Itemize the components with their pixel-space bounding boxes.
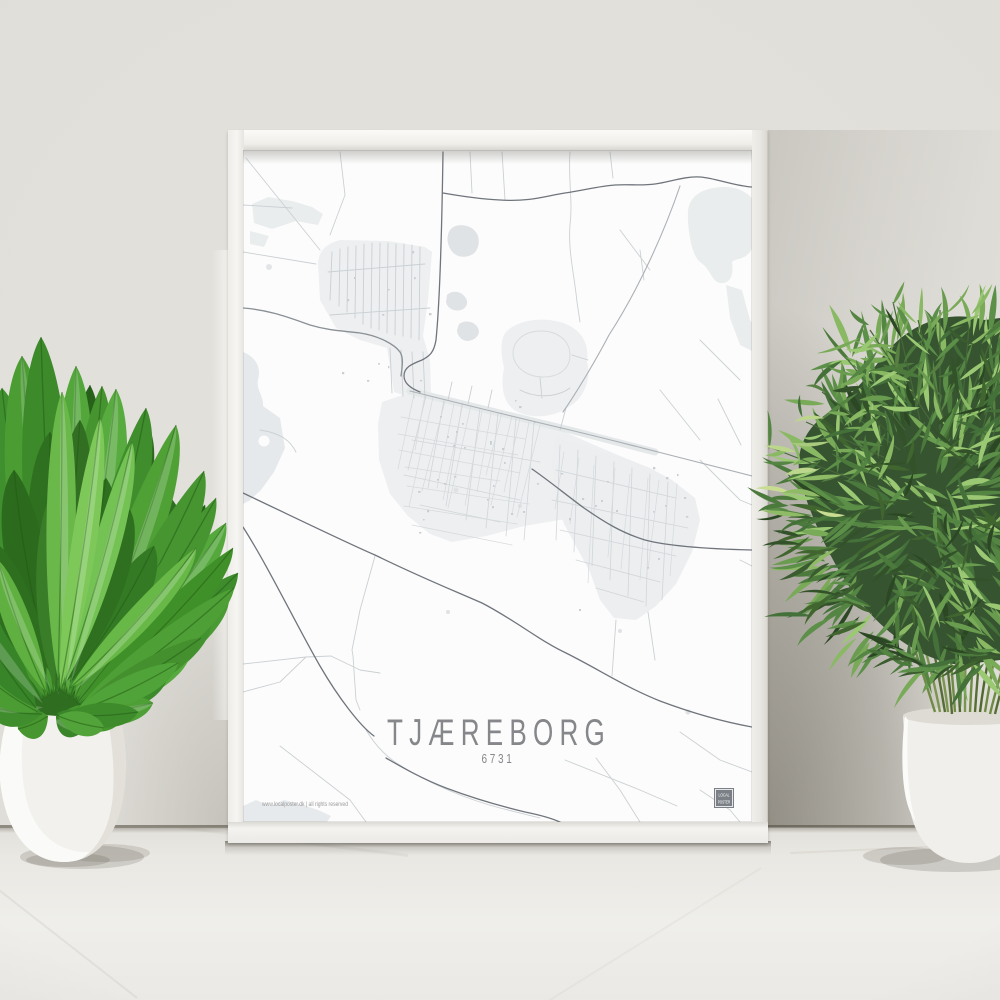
- svg-text:POSTER: POSTER: [718, 800, 731, 805]
- svg-text:LOCAL: LOCAL: [719, 793, 730, 798]
- svg-text:TJÆREBORG: TJÆREBORG: [387, 711, 611, 753]
- svg-text:6731: 6731: [482, 751, 515, 766]
- svg-text:www.localposter.dk | all right: www.localposter.dk | all rights reserved: [261, 802, 348, 808]
